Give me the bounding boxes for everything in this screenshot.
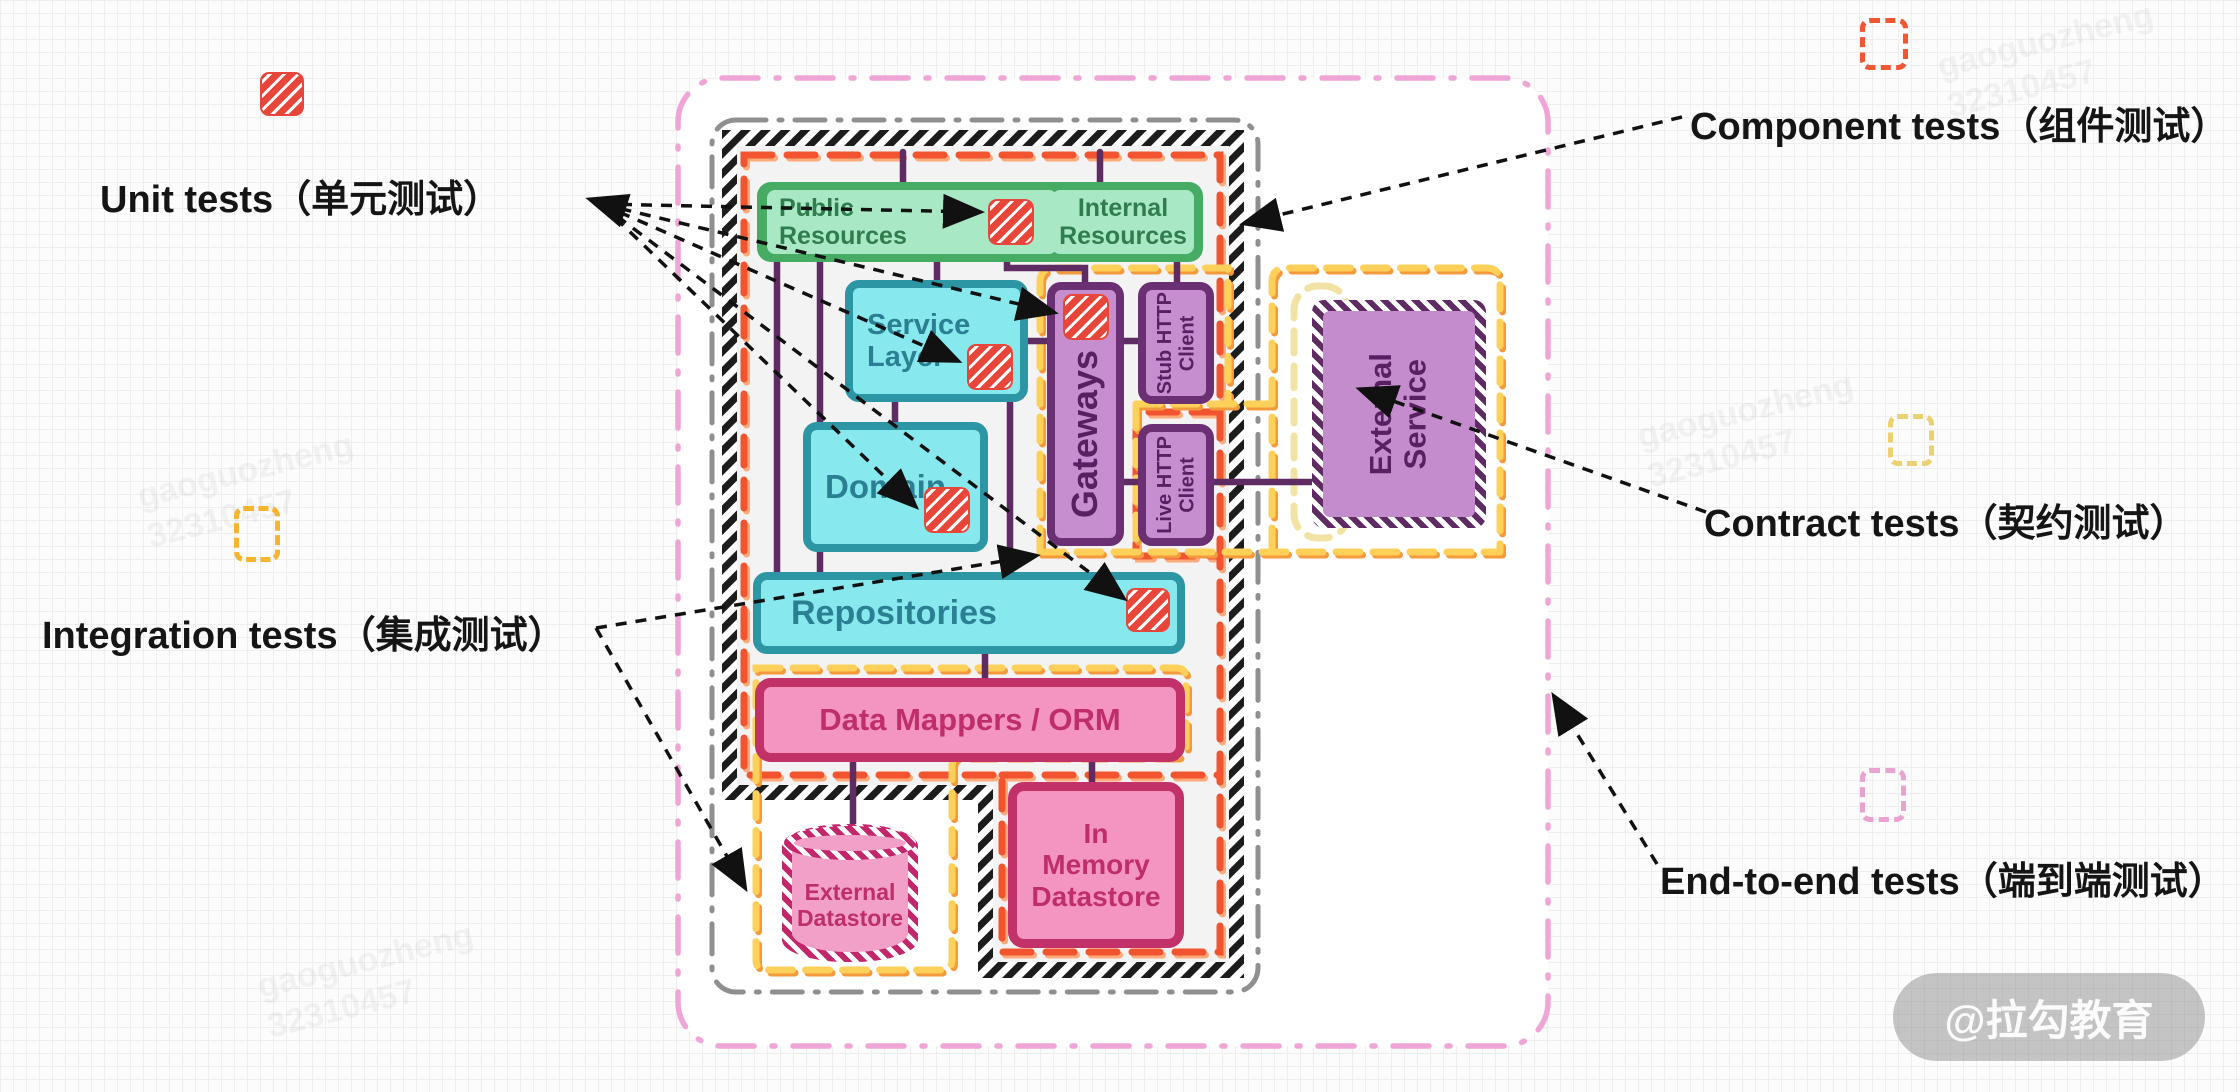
e2e-tests-label: End-to-end tests（端到端测试） [1660, 850, 2226, 905]
unit-arrow-label-stub [592, 200, 614, 207]
internal-resources-label: Internal Resources [1059, 194, 1187, 250]
tiled-watermark: gaoguozheng32310457 [253, 914, 487, 1047]
unit-test-marker-domain [924, 487, 970, 533]
component-arrow [1246, 117, 1682, 223]
in-memory-datastore-label: In Memory Datastore [1031, 818, 1160, 912]
component-tests-icon [1860, 18, 1908, 70]
live-http-client-box: Live HTTP Client [1138, 424, 1214, 546]
data-mappers-orm-label: Data Mappers / ORM [819, 703, 1120, 738]
stub-http-client-box: Stub HTTP Client [1138, 282, 1214, 404]
tiled-watermark: gaoguozheng32310457 [1173, 94, 1407, 227]
external-datastore-label: External Datastore [782, 880, 918, 932]
repositories-box: Repositories [753, 572, 1185, 654]
integration-tests-icon [234, 506, 280, 562]
brand-watermark-text: @拉勾教育 [1945, 987, 2154, 1048]
service-layer-label: Service Layer [867, 309, 970, 374]
unit-test-marker-repositories [1126, 588, 1170, 632]
external-service-label: External Service [1364, 353, 1433, 475]
resources-container: Public Resources Internal Resources [757, 182, 1203, 262]
unit-test-marker-gateways [1063, 294, 1109, 340]
e2e-tests-icon [1860, 768, 1906, 822]
data-mappers-orm-box: Data Mappers / ORM [755, 678, 1185, 762]
external-datastore-cylinder: External Datastore [782, 824, 918, 962]
public-resources-label: Public Resources [779, 194, 907, 250]
contract-tests-label: Contract tests（契约测试） [1704, 492, 2188, 547]
integration-tests-label: Integration tests（集成测试） [42, 604, 566, 659]
brand-watermark-badge: @拉勾教育 [1893, 973, 2205, 1061]
unit-test-marker-public-resources [988, 199, 1034, 245]
component-tests-label: Component tests（组件测试） [1690, 95, 2228, 150]
unit-tests-label: Unit tests（单元测试） [100, 168, 501, 223]
live-http-client-label: Live HTTP Client [1154, 436, 1199, 534]
integration-arrow-datastore-boundary [596, 628, 744, 886]
tiled-watermark: gaoguozheng32310457 [1633, 364, 1867, 497]
gateways-label: Gateways [1065, 350, 1105, 518]
unit-test-marker-service-layer [967, 344, 1013, 390]
unit-tests-icon [260, 72, 304, 116]
external-service-box: External Service [1312, 300, 1486, 528]
in-memory-datastore-box: In Memory Datastore [1008, 782, 1184, 948]
stub-http-client-label: Stub HTTP Client [1154, 292, 1199, 394]
internal-resources-box: Internal Resources [1052, 190, 1194, 254]
repositories-label: Repositories [791, 594, 997, 632]
contract-tests-icon [1888, 414, 1934, 466]
testing-scopes-diagram: Public Resources Internal Resources Serv… [0, 0, 2240, 1092]
e2e-arrow [1555, 698, 1657, 864]
